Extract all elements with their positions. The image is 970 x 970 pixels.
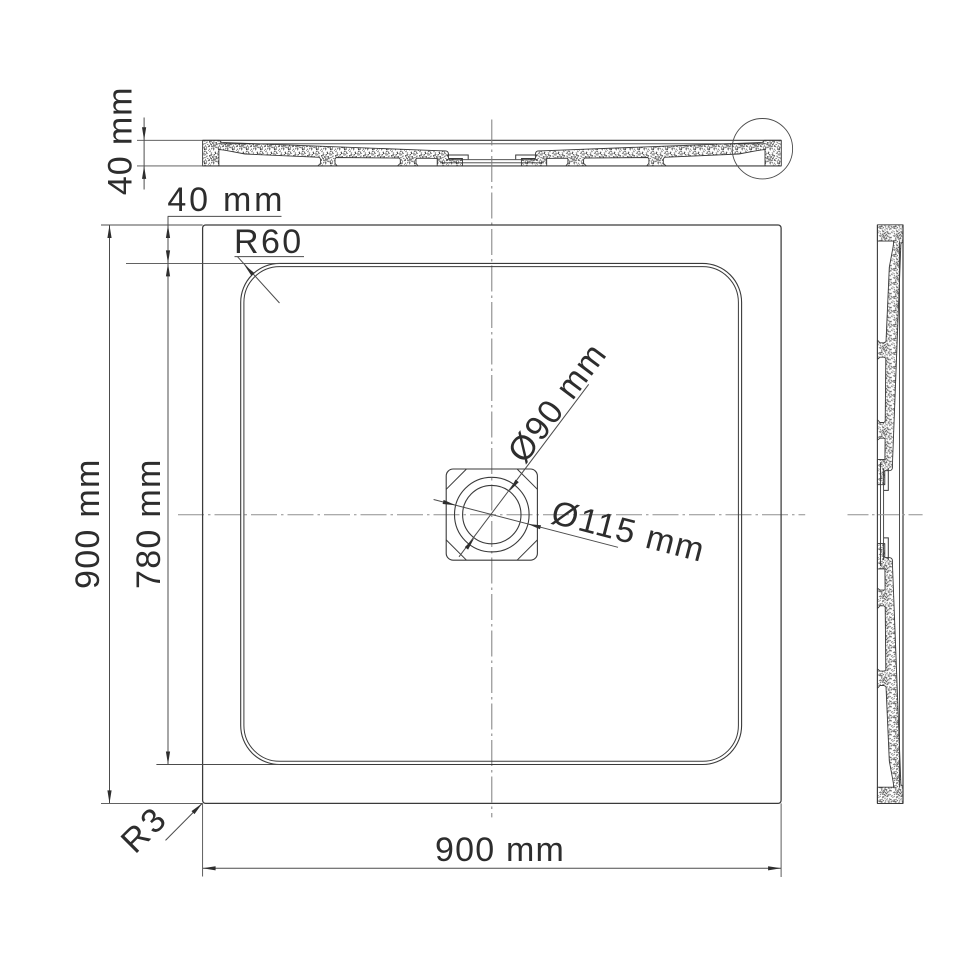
svg-text:780 mm: 780 mm [130, 458, 168, 589]
svg-text:900 mm: 900 mm [435, 831, 565, 869]
svg-text:R60: R60 [234, 223, 304, 261]
svg-text:40 mm: 40 mm [167, 181, 285, 219]
svg-text:900 mm: 900 mm [69, 458, 107, 589]
svg-text:40 mm: 40 mm [102, 87, 140, 195]
